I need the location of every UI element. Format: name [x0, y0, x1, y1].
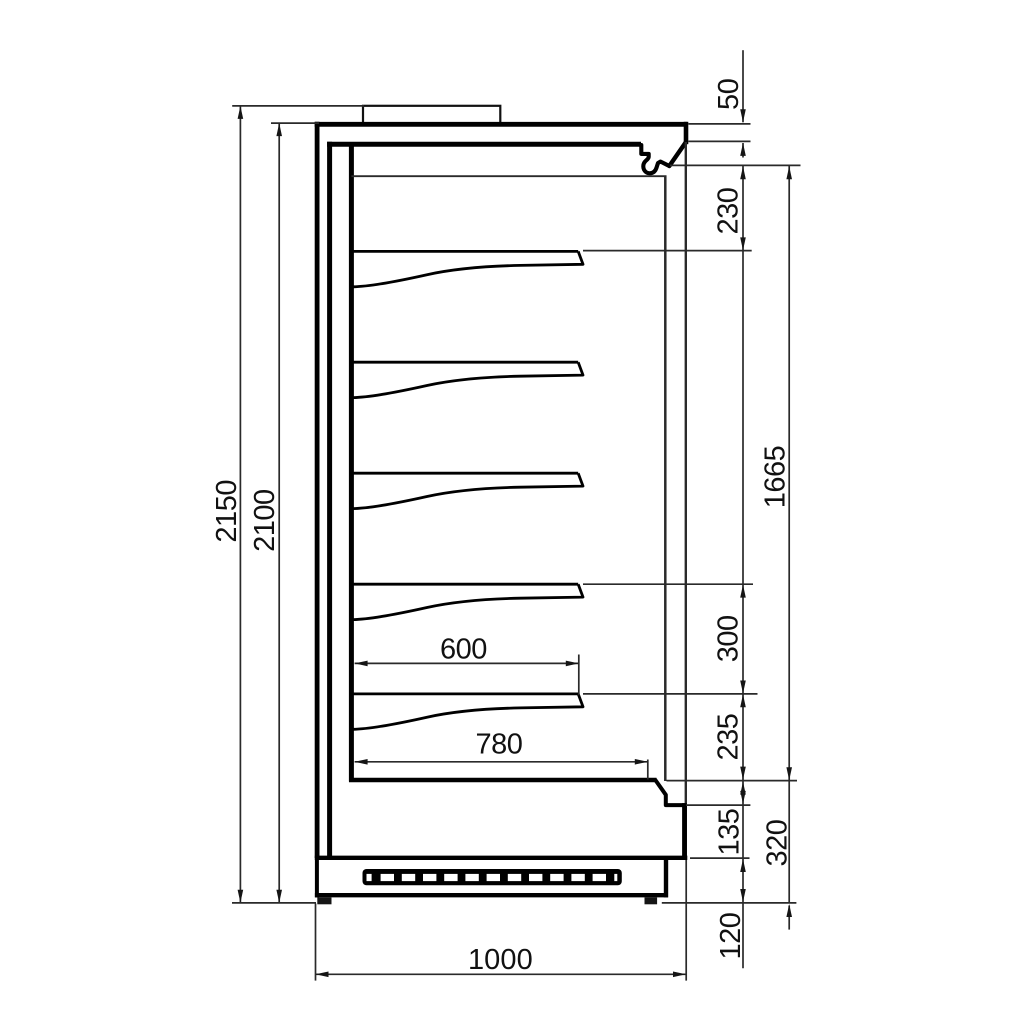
svg-text:780: 780: [476, 728, 523, 760]
svg-text:2100: 2100: [249, 489, 281, 552]
svg-text:320: 320: [761, 820, 793, 867]
svg-text:230: 230: [713, 188, 745, 235]
svg-text:235: 235: [713, 714, 745, 761]
svg-text:135: 135: [714, 809, 746, 856]
svg-text:2150: 2150: [211, 480, 243, 543]
svg-text:50: 50: [713, 79, 745, 110]
svg-text:300: 300: [713, 615, 745, 662]
svg-text:1665: 1665: [760, 446, 792, 509]
svg-text:1000: 1000: [468, 944, 533, 976]
svg-text:120: 120: [715, 913, 747, 960]
svg-text:600: 600: [440, 633, 487, 665]
